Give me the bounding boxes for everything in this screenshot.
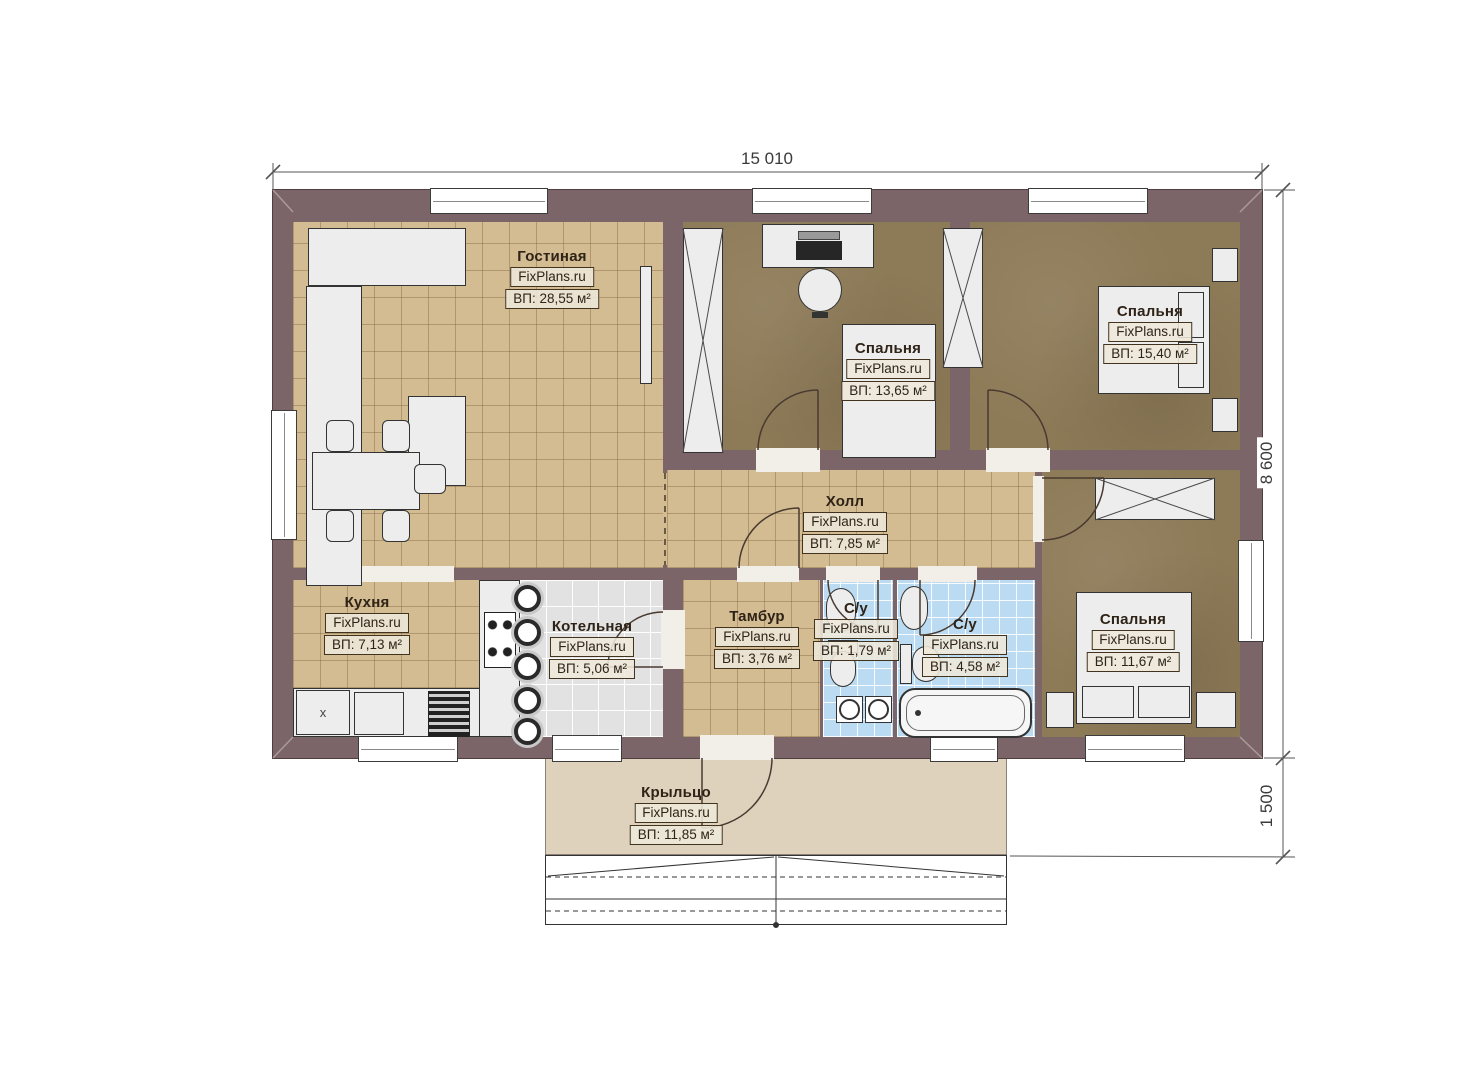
stove	[484, 612, 516, 668]
room-name: Спальня	[855, 340, 921, 357]
window-bedroom11-right	[1238, 540, 1264, 642]
watermark: FixPlans.ru	[325, 613, 409, 633]
dining-chair	[326, 510, 354, 542]
room-area: ВП: 3,76 м²	[714, 649, 800, 669]
kitchen-cabinet-x: x	[296, 690, 350, 735]
opening-boiler-door	[661, 610, 685, 669]
wardrobe	[683, 228, 723, 453]
watermark: FixPlans.ru	[814, 619, 898, 639]
room-area: ВП: 11,67 м²	[1087, 652, 1180, 672]
floor-plan-canvas: 15 010 8 600 1 500 x	[0, 0, 1473, 1080]
window-living-top	[430, 188, 548, 214]
dining-table	[312, 452, 420, 510]
opening-wc-big-door	[918, 566, 977, 582]
dining-chair	[382, 510, 410, 542]
room-label-wc-small: С/у FixPlans.ru ВП: 1,79 м²	[813, 600, 899, 661]
porch-area	[545, 757, 1007, 855]
nightstand	[1212, 248, 1238, 282]
room-label-tambur: Тамбур FixPlans.ru ВП: 3,76 м²	[714, 608, 800, 669]
opening-tambur-hall	[737, 566, 799, 582]
window-living-left	[271, 410, 297, 540]
room-name: Котельная	[552, 618, 632, 635]
opening-wc-small-door	[826, 566, 880, 582]
sofa-top-section	[308, 228, 466, 286]
tv-unit	[640, 266, 652, 384]
kitchen-drying-rack	[428, 691, 470, 737]
boiler-unit	[514, 619, 541, 646]
nightstand	[1046, 692, 1074, 728]
pillow	[1138, 686, 1190, 718]
room-name: С/у	[953, 616, 977, 633]
room-name: Холл	[826, 493, 864, 510]
room-area: ВП: 15,40 м²	[1103, 344, 1197, 364]
opening-bedroom11-door	[1033, 476, 1044, 542]
boiler-unit	[514, 653, 541, 680]
wardrobe	[1095, 478, 1215, 520]
dimension-right-height: 8 600	[1257, 438, 1277, 489]
room-area: ВП: 5,06 м²	[549, 659, 635, 679]
boiler-unit	[514, 687, 541, 714]
room-area: ВП: 1,79 м²	[813, 641, 899, 661]
nightstand	[1196, 692, 1236, 728]
room-label-bedroom11: Спальня FixPlans.ru ВП: 11,67 м²	[1087, 611, 1180, 672]
room-name: Спальня	[1100, 611, 1166, 628]
room-label-bedroom15: Спальня FixPlans.ru ВП: 15,40 м²	[1103, 303, 1197, 364]
room-name: С/у	[844, 600, 868, 617]
room-label-living: Гостиная FixPlans.ru ВП: 28,55 м²	[505, 248, 599, 309]
watermark: FixPlans.ru	[550, 637, 634, 657]
room-area: ВП: 13,65 м²	[841, 381, 935, 401]
washing-machine	[865, 696, 892, 723]
window-bedroom11-bottom	[1085, 735, 1185, 762]
room-name: Крыльцо	[641, 784, 711, 801]
office-chair-base	[812, 312, 828, 318]
opening-bedroom15-door	[986, 448, 1050, 472]
washing-machine	[836, 696, 863, 723]
room-label-wc-big: С/у FixPlans.ru ВП: 4,58 м²	[922, 616, 1008, 677]
boiler-unit	[514, 718, 541, 745]
opening-front-door	[700, 735, 774, 760]
toilet-tank	[900, 644, 912, 684]
bathtub	[899, 688, 1032, 738]
room-area: ВП: 7,85 м²	[802, 534, 888, 554]
room-label-hall: Холл FixPlans.ru ВП: 7,85 м²	[802, 493, 888, 554]
watermark: FixPlans.ru	[634, 803, 718, 823]
dining-chair	[326, 420, 354, 452]
room-area: ВП: 11,85 м²	[630, 825, 723, 845]
room-area: ВП: 4,58 м²	[922, 657, 1008, 677]
watermark: FixPlans.ru	[715, 627, 799, 647]
room-name: Тамбур	[729, 608, 785, 625]
window-kitchen-bottom	[358, 735, 458, 762]
laptop-keyboard	[796, 241, 842, 260]
opening-living-hall	[663, 473, 667, 565]
laptop-screen	[798, 231, 840, 240]
room-label-bedroom13: Спальня FixPlans.ru ВП: 13,65 м²	[841, 340, 935, 401]
window-bottom-right-of-door	[930, 735, 998, 762]
watermark: FixPlans.ru	[1108, 322, 1192, 342]
boiler-unit	[514, 585, 541, 612]
watermark: FixPlans.ru	[510, 267, 594, 287]
room-name: Кухня	[345, 594, 390, 611]
window-bedroom15-top	[1028, 188, 1148, 214]
pillow	[1082, 686, 1134, 718]
room-area: ВП: 28,55 м²	[505, 289, 599, 309]
dimension-porch-height: 1 500	[1257, 781, 1277, 832]
kitchen-sink	[354, 692, 404, 735]
office-chair	[798, 268, 842, 312]
room-area: ВП: 7,13 м²	[324, 635, 410, 655]
room-label-kitchen: Кухня FixPlans.ru ВП: 7,13 м²	[324, 594, 410, 655]
porch-steps	[545, 855, 1007, 925]
wardrobe	[943, 228, 983, 368]
room-label-porch: Крыльцо FixPlans.ru ВП: 11,85 м²	[630, 784, 723, 845]
watermark: FixPlans.ru	[923, 635, 1007, 655]
room-name: Гостиная	[517, 248, 586, 265]
dimension-top-width: 15 010	[737, 149, 797, 169]
dining-chair	[382, 420, 410, 452]
watermark: FixPlans.ru	[803, 512, 887, 532]
dining-chair	[414, 464, 446, 494]
window-bedroom13-top	[752, 188, 872, 214]
window-bottom-left-of-door	[552, 735, 622, 762]
nightstand	[1212, 398, 1238, 432]
watermark: FixPlans.ru	[1091, 630, 1175, 650]
watermark: FixPlans.ru	[846, 359, 930, 379]
opening-bedroom13-door	[756, 448, 820, 472]
room-name: Спальня	[1117, 303, 1183, 320]
room-label-boiler: Котельная FixPlans.ru ВП: 5,06 м²	[549, 618, 635, 679]
